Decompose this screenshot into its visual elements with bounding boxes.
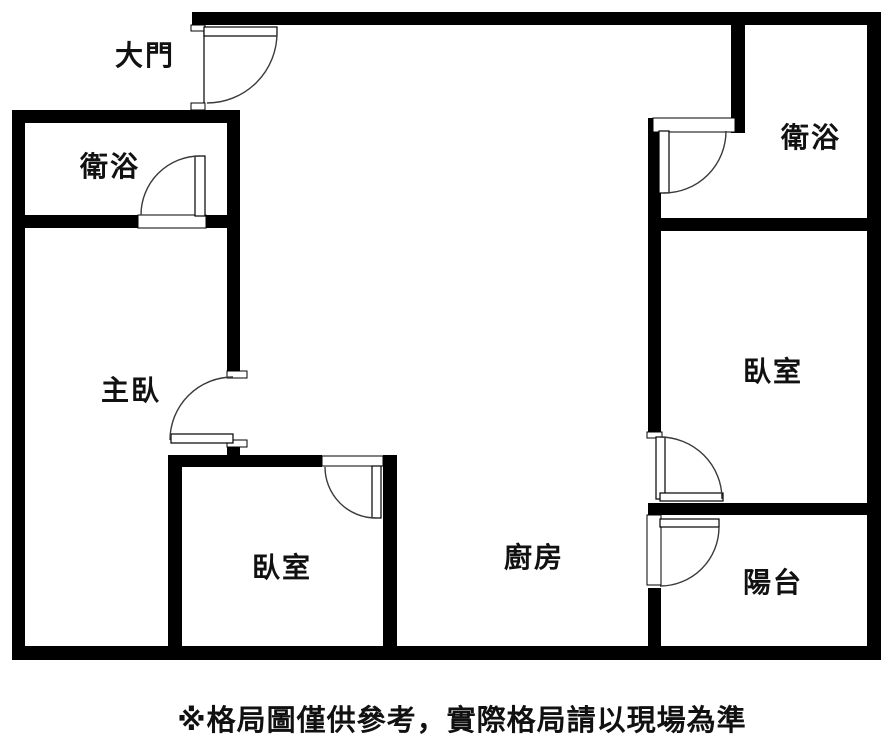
wall-master-right-upper xyxy=(227,110,240,372)
bedroom-left-door-swing-arc xyxy=(325,467,376,518)
disclaimer-note: ※格局圖僅供參考，實際格局請以現場為準 xyxy=(177,697,746,739)
bathroom-right-door-threshold xyxy=(653,118,735,132)
wall-bed-left-right xyxy=(383,455,397,648)
label-balcony: 陽台 xyxy=(743,569,803,597)
bathroom-left-door-swing-arc xyxy=(141,156,200,215)
balcony-door xyxy=(647,515,719,586)
entry-door-jamb-top xyxy=(191,25,205,31)
wall-bottom xyxy=(12,646,881,660)
entry-door-jamb-bottom xyxy=(191,103,205,110)
wall-balcony-divider xyxy=(648,503,881,515)
wall-bath-right-bottom xyxy=(648,218,881,231)
bedroom-right-door-open-leaf xyxy=(660,493,723,501)
label-entrance: 大門 xyxy=(115,42,175,70)
entry-door xyxy=(191,25,277,110)
balcony-door-opening xyxy=(647,515,661,585)
bedroom-right-door xyxy=(647,432,723,501)
entry-door-leaf xyxy=(204,27,277,36)
label-bedroom-right: 臥室 xyxy=(743,358,803,386)
master-door-leaf xyxy=(171,434,233,443)
label-bathroom-left: 衛浴 xyxy=(80,153,140,181)
master-door-swing-arc xyxy=(170,377,233,440)
wall-top xyxy=(192,12,881,25)
entry-door-swing-arc xyxy=(207,33,277,103)
bathroom-right-door-leaf xyxy=(659,131,669,193)
bedroom-left-door-leaf xyxy=(372,466,381,518)
label-kitchen: 廚房 xyxy=(504,544,564,572)
bedroom-right-door-swing-arc xyxy=(660,437,722,499)
balcony-door-swing-arc xyxy=(660,527,719,586)
bathroom-right-door-swing-arc xyxy=(664,131,726,193)
wall-bed-left-left xyxy=(168,455,182,648)
floor-plan: 大門 衛浴 主臥 臥室 廚房 衛浴 臥室 陽台 ※格局圖僅供參考，實際格局請以現… xyxy=(0,0,889,746)
wall-left xyxy=(12,110,25,660)
wall-bath-left-top xyxy=(12,110,240,123)
bedroom-left-door-threshold xyxy=(322,456,383,466)
master-bedroom-door xyxy=(170,371,247,447)
bathroom-left-door-leaf xyxy=(195,156,205,216)
bedroom-right-door-leaf xyxy=(656,437,665,499)
label-master-bedroom: 主臥 xyxy=(101,377,161,405)
balcony-door-leaf xyxy=(660,519,719,527)
bathroom-left-door-threshold xyxy=(138,215,206,228)
walls xyxy=(12,12,881,660)
wall-bed-left-top-a xyxy=(168,455,322,467)
bedroom-left-door xyxy=(322,456,383,518)
label-bathroom-right: 衛浴 xyxy=(781,124,841,152)
bathroom-right-door xyxy=(653,118,735,193)
wall-right-zone-lower xyxy=(648,588,661,646)
wall-right xyxy=(867,12,881,660)
wall-bath-left-bottom-a xyxy=(12,215,138,228)
bathroom-left-door xyxy=(138,156,206,228)
wall-bath-right-stub xyxy=(731,12,745,133)
label-bedroom-left: 臥室 xyxy=(252,554,312,582)
